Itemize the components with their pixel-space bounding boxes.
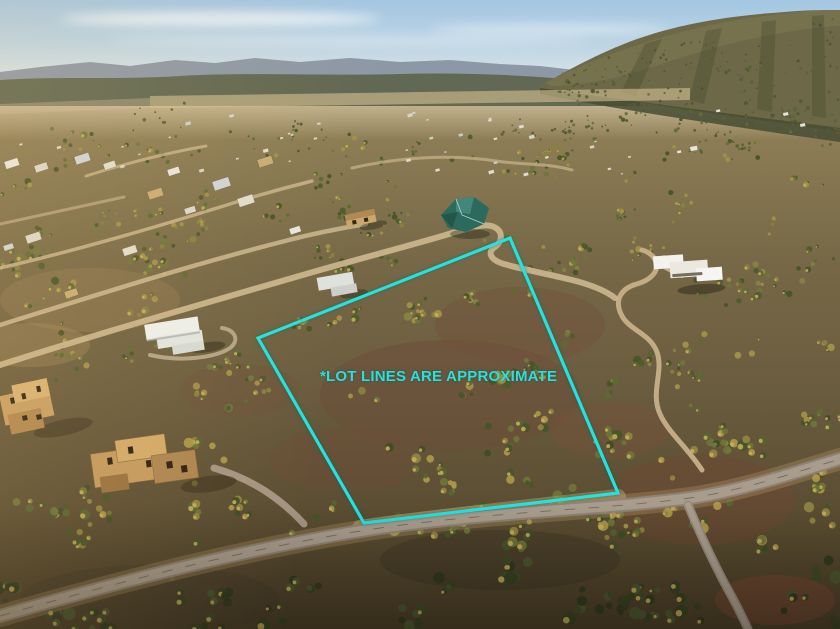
aerial-photo: *LOT LINES ARE APPROXIMATE — [0, 0, 840, 629]
upper-road-f — [0, 197, 124, 224]
adobe-house-upper — [0, 371, 94, 448]
valley-road-e — [352, 157, 572, 170]
lot-disclaimer-text: *LOT LINES ARE APPROXIMATE — [320, 368, 557, 385]
tan-house-upper — [345, 207, 388, 235]
modern-white-house-right — [653, 252, 726, 298]
scene-layers — [0, 0, 840, 629]
